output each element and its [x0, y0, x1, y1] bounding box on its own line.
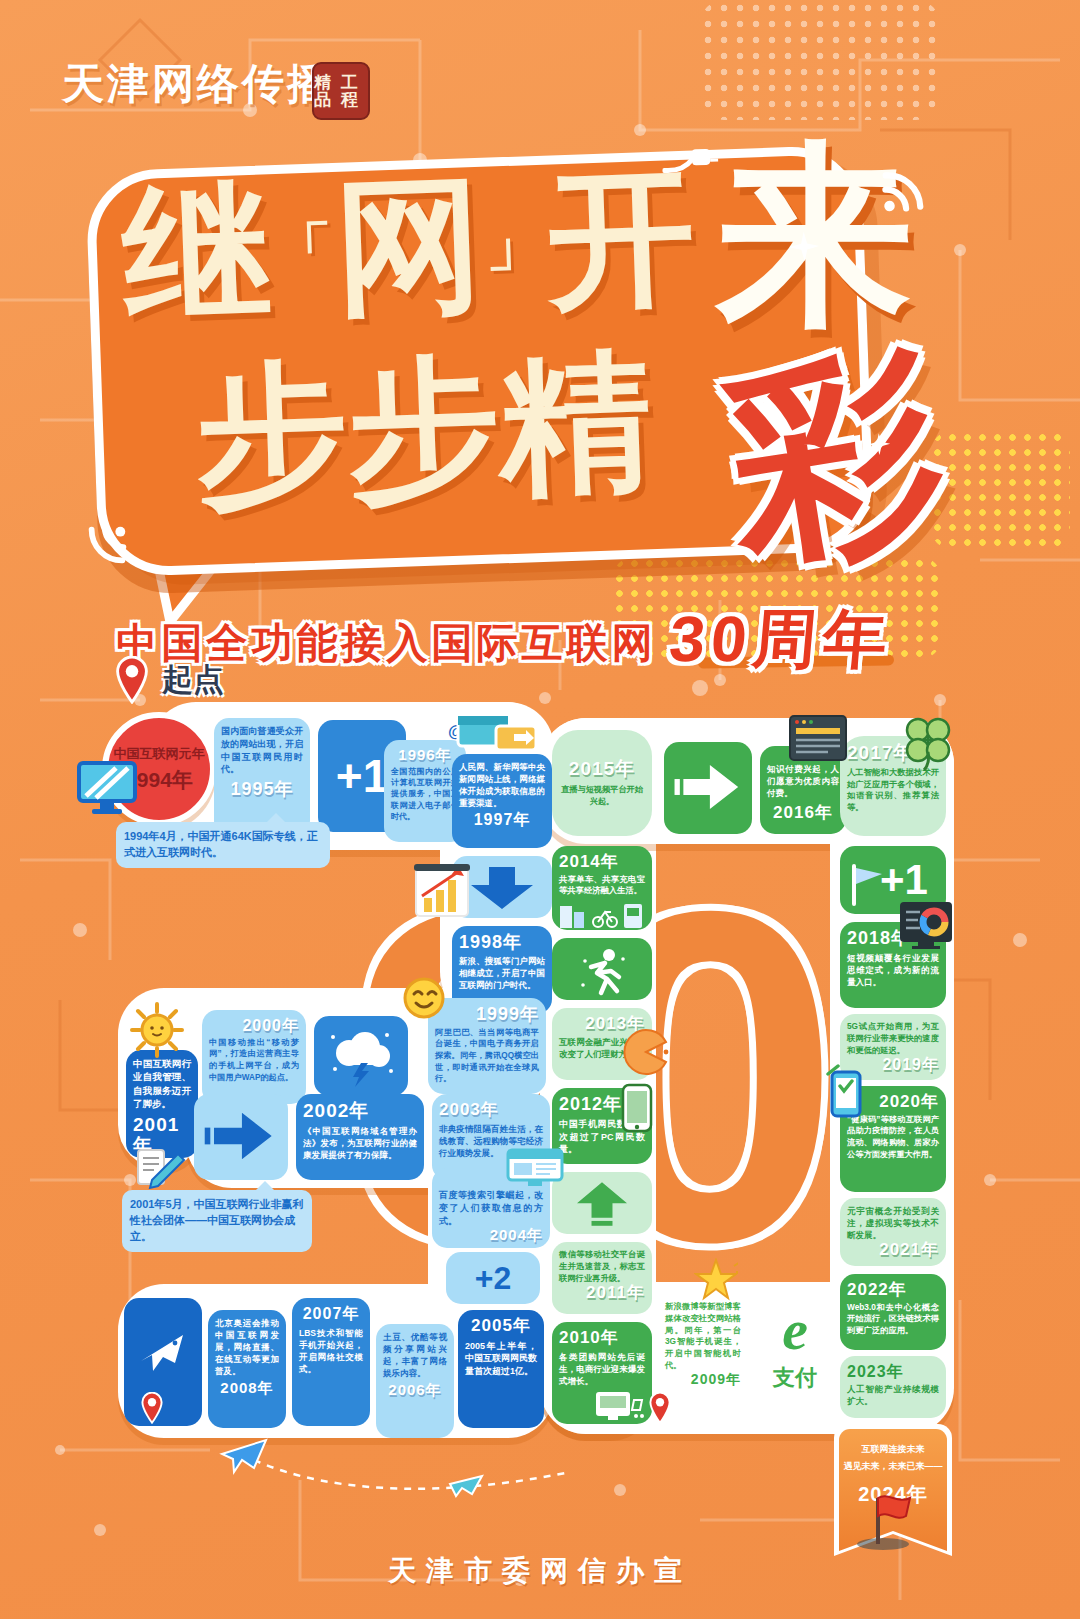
tile-text: 人民网、新华网等中央新闻网站上线，网络媒体开始成为获取信息的重要渠道。 — [459, 761, 545, 809]
tile-2001: 中国互联网行业自我管理、自我服务迈开了脚步。 2001年 — [126, 1050, 198, 1158]
tile-2022: 2022年 Web3.0和去中心化概念开始流行，区块链技术得到更广泛的应用。 — [840, 1274, 946, 1350]
quote-mark: 「 — [272, 216, 334, 285]
sparkle-icon — [789, 231, 820, 262]
tile-1995: 国内面向普通受众开放的网站出现，开启中国互联网民用时代。 1995年 — [214, 718, 310, 836]
tile-text: 互联网连接未来 — [839, 1443, 947, 1456]
tile-arrow-right-green — [664, 742, 752, 834]
pencil-doc-icon — [134, 1146, 186, 1190]
clover-icon — [894, 708, 960, 774]
tile-epay: e 支付 — [754, 1294, 836, 1420]
plug-icon — [661, 140, 732, 176]
sharing-economy-illustration — [558, 902, 646, 928]
callout-2001: 2001年5月，中国互联网行业非赢利性社会团体——中国互联网协会成立。 — [122, 1190, 312, 1252]
up-arrow-icon — [567, 1179, 637, 1229]
bonus-label: +2 — [453, 1259, 533, 1297]
tile-year: 2003年 — [439, 1101, 543, 1120]
tile-year: 2011年 — [559, 1284, 645, 1303]
title-line-1: 继「网」开 — [120, 151, 698, 341]
tile-2015: 2015年 直播与短视频平台开始兴起。 — [552, 730, 652, 836]
tile-year: 2004年 — [439, 1227, 543, 1244]
tile-text: 共享单车、共享充电宝等共享经济融入生活。 — [559, 874, 645, 898]
tile-2002: 2002年 《中国互联网络域名管理办法》发布，为互联网行业的健康发展提供了有力保… — [296, 1094, 424, 1180]
plane-icon — [135, 1323, 191, 1379]
tile-year: 2022年 — [847, 1281, 939, 1300]
tile-2011: 微信等移动社交平台诞生并迅速普及，标志互联网行业再升级。 2011年 — [552, 1242, 652, 1314]
sun-icon — [126, 1000, 188, 1060]
title-char-cai: 彩 — [710, 303, 962, 615]
title-char: 开 — [544, 153, 698, 323]
quote-mark: 」 — [484, 209, 546, 278]
tile-year: 1996年 — [391, 747, 459, 764]
phone-icon — [620, 1082, 654, 1134]
tile-text: 百度等搜索引擎崛起，改变了人们获取信息的方式。 — [439, 1189, 543, 1227]
tile-year: 1995年 — [221, 780, 303, 800]
title-bubble: 继「网」开 来 步步精 彩 — [85, 145, 875, 578]
pie-chart-icon — [622, 1028, 670, 1076]
browser-monitor-icon — [506, 1148, 564, 1190]
tile-text: 北京奥运会推动中国互联网发展，网络直播、在线互动等更加普及。 — [215, 1317, 279, 1377]
tile-2006: 土豆、优酷等视频分享网站兴起，丰富了网络娱乐内容。 2006年 — [376, 1324, 454, 1438]
tile-year: 2015年 — [559, 759, 645, 780]
tile-text: 阿里巴巴、当当网等电商平台诞生，中国电子商务开启探索。同年，腾讯QQ横空出世，即… — [435, 1027, 539, 1085]
tile-text: 微信等移动社交平台诞生并迅速普及，标志互联网行业再升级。 — [559, 1249, 645, 1284]
footer-credit: 天津市委网信办宣 — [0, 1552, 1080, 1590]
subtitle-emphasis: 30周年 — [666, 596, 897, 683]
seal-text-2: 工程 — [341, 74, 368, 108]
tile-text: Web3.0和去中心化概念开始流行，区块链技术得到更广泛的应用。 — [847, 1302, 939, 1337]
tile-text: 短视频颠覆各行业发展思维定式，成为新的流量入口。 — [847, 952, 939, 988]
poster: 30 天津网络传播 精品 工程 继「网」开 来 步步精 彩 — [0, 0, 1080, 1619]
pin-icon — [648, 1392, 672, 1424]
tile-year: 1997年 — [459, 811, 545, 829]
tile-year: 2016年 — [767, 804, 839, 823]
tile-year: 2014年 — [559, 853, 645, 872]
browser-windows-icon — [456, 712, 544, 752]
tile-2000: 2000年 中国移动推出“移动梦网”，打造由运营商主导的手机上网平台，成为中国用… — [202, 1010, 306, 1104]
tile-text: 2005年上半年，中国互联网网民数量首次超过1亿。 — [465, 1340, 537, 1378]
tile-text: 人工智能产业持续规模扩大。 — [847, 1383, 939, 1407]
tile-text: LBS技术和智能手机开始兴起，开启网络社交模式。 — [299, 1327, 363, 1375]
right-arrow-icon — [201, 1101, 281, 1171]
tile-year: 1998年 — [459, 933, 545, 953]
sparkle-icon — [868, 433, 891, 456]
tile-text: 各类团购网站先后诞生，电商行业迎来爆发式增长。 — [559, 1351, 645, 1387]
storm-cloud-icon — [321, 1023, 401, 1087]
tile-text: 遇见未来，未来已来—— — [839, 1460, 947, 1473]
tile-year: 2008年 — [215, 1380, 279, 1397]
tile-year: 2006年 — [383, 1382, 447, 1399]
paper-plane-doodle — [214, 1432, 594, 1506]
tile-2021: 元宇宙概念开始受到关注，虚拟现实等技术不断发展。 2021年 — [840, 1198, 946, 1266]
callout-text: 2001年5月，中国互联网行业非赢利性社会团体——中国互联网协会成立。 — [130, 1198, 304, 1242]
tile-runner — [552, 938, 652, 1000]
tile-text: 5G试点开始商用，为互联网行业带来更快的速度和更低的延迟。 — [847, 1021, 939, 1056]
epay-e: e — [761, 1301, 829, 1359]
monitor-icon — [76, 760, 138, 818]
tile-text: 《中国互联网络域名管理办法》发布，为互联网行业的健康发展提供了有力保障。 — [303, 1125, 417, 1161]
title-char: 网 — [332, 161, 486, 331]
tile-text: “健康码”等移动互联网产品助力疫情防控，在人员流动、网络购物、居家办公等方面发挥… — [847, 1114, 939, 1161]
title-char: 继 — [120, 168, 274, 338]
tile-text: 新浪、搜狐等门户网站相继成立，开启了中国互联网的门户时代。 — [459, 955, 545, 991]
bar-chart-icon — [412, 862, 472, 924]
tile-year: 2021年 — [847, 1241, 939, 1260]
tile-year: 1999年 — [435, 1005, 539, 1025]
tile-year: 2002年 — [303, 1101, 417, 1122]
browser-dark-icon — [788, 714, 848, 762]
tile-year: 2007年 — [299, 1305, 363, 1323]
epay-label: 支付 — [761, 1363, 829, 1393]
callout-text: 1994年4月，中国开通64K国际专线，正式进入互联网时代。 — [124, 830, 318, 858]
phone-check-icon — [826, 1064, 866, 1118]
tile-text: 新浪微博等新型博客媒体改变社交网站格局。同年，第一台3G智能手机诞生，开启中国智… — [665, 1301, 741, 1372]
tile-text: 中国互联网行业自我管理、自我服务迈开了脚步。 — [133, 1057, 191, 1111]
tile-text: 元宇宙概念开始受到关注，虚拟现实等技术不断发展。 — [847, 1205, 939, 1241]
smiley-icon — [402, 976, 446, 1020]
callout-1994: 1994年4月，中国开通64K国际专线，正式进入互联网时代。 — [116, 822, 330, 868]
tile-year: 2023年 — [847, 1363, 939, 1381]
tile-text: 土豆、优酷等视频分享网站兴起，丰富了网络娱乐内容。 — [383, 1331, 447, 1379]
tile-year: 2010年 — [559, 1329, 645, 1348]
tile-text: 国内面向普通受众开放的网站出现，开启中国互联网民用时代。 — [221, 725, 303, 776]
donut-chart-icon — [898, 900, 954, 950]
tile-year: 2009年 — [665, 1372, 741, 1387]
seal-text-1: 精品 — [314, 74, 341, 108]
tile-2014: 2014年 共享单车、共享充电宝等共享经济融入生活。 — [552, 846, 652, 930]
title-line-2: 步步精 — [192, 329, 654, 527]
tile-text: 知识付费兴起，人们愿意为优质内容付费。 — [767, 763, 839, 799]
star-icon — [694, 1258, 738, 1302]
tile-2008: 北京奥运会推动中国互联网发展，网络直播、在线互动等更加普及。 2008年 — [208, 1310, 286, 1428]
pin-icon — [140, 1392, 164, 1424]
tile-text: 中国移动推出“移动梦网”，打造由运营商主导的手机上网平台，成为中国用户WAP的起… — [209, 1037, 299, 1084]
tile-arrow-right-blue — [194, 1094, 288, 1180]
tile-year: 2000年 — [209, 1017, 299, 1035]
tile-1997: 人民网、新华网等中央新闻网站上线，网络媒体开始成为获取信息的重要渠道。 1997… — [452, 754, 552, 848]
tile-text: 全国范围内的公用计算机互联网开始提供服务，中国互联网进入电子邮件时代。 — [391, 766, 459, 823]
tile-plus2: +2 — [446, 1252, 540, 1304]
quality-seal: 精品 工程 — [312, 62, 370, 120]
tile-2010: 2010年 各类团购网站先后诞生，电商行业迎来爆发式增长。 — [552, 1322, 652, 1424]
start-marker: 起点 — [114, 656, 224, 704]
flag-icon — [848, 862, 884, 906]
tile-arrow-up — [552, 1172, 652, 1234]
runner-icon — [575, 947, 629, 997]
ecommerce-illustration — [592, 1390, 648, 1424]
finish-flag-icon — [848, 1488, 918, 1552]
brand-logo: 天津网络传播 — [62, 56, 332, 112]
tile-text: 直播与短视频平台开始兴起。 — [559, 784, 645, 807]
right-arrow-icon — [671, 749, 747, 825]
tile-storm — [314, 1016, 408, 1096]
start-pin-icon — [114, 656, 150, 704]
tile-year: 2005年 — [465, 1317, 537, 1336]
halftone-top-right — [700, 0, 940, 120]
tile-2005: 2005年 2005年上半年，中国互联网网民数量首次超过1亿。 — [458, 1310, 544, 1428]
tile-2023: 2023年 人工智能产业持续规模扩大。 — [840, 1356, 946, 1418]
start-label: 起点 — [162, 659, 224, 701]
tile-2007: 2007年 LBS技术和智能手机开始兴起，开启网络社交模式。 — [292, 1298, 370, 1426]
